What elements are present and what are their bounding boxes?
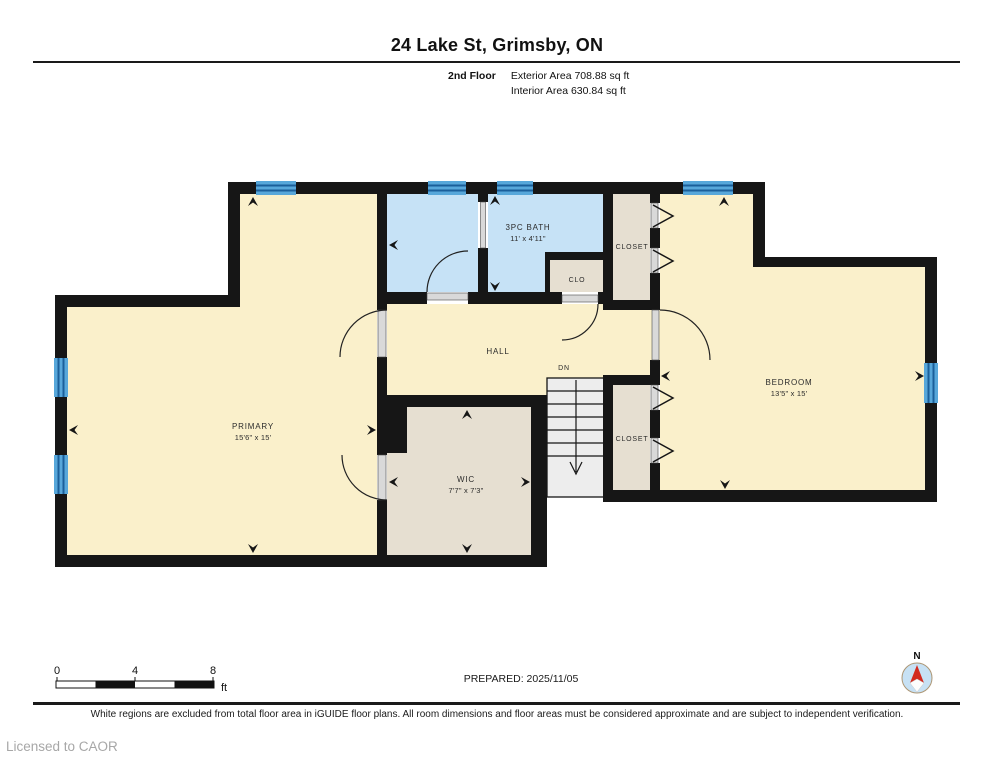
room-label-primary: PRIMARY	[232, 422, 274, 431]
wall-segment	[377, 357, 387, 455]
wall-segment	[531, 407, 547, 567]
room-dims-bath: 11' x 4'11"	[510, 234, 546, 243]
wall-segment	[55, 295, 67, 567]
window	[54, 455, 68, 494]
room-label-clo: CLO	[569, 277, 586, 284]
footer-divider	[33, 702, 960, 705]
room-clo	[550, 260, 603, 292]
floor-plan-page: 24 Lake St, Grimsby, ON 2nd Floor Exteri…	[0, 0, 994, 768]
room-label-closet-upper: CLOSET	[616, 244, 649, 251]
wall-segment	[545, 252, 550, 292]
room-label-bath: 3PC BATH	[506, 223, 551, 232]
wall-segment	[387, 292, 427, 304]
scale-bar-segment	[175, 681, 215, 688]
disclaimer-text: White regions are excluded from total fl…	[0, 709, 994, 720]
compass-rose-icon: N	[902, 651, 932, 693]
wall-segment	[377, 194, 387, 310]
door-leaf	[378, 455, 386, 500]
room-dims-primary: 15'6" x 15'	[235, 433, 272, 442]
scale-unit-label: ft	[221, 682, 227, 694]
prepared-date: PREPARED: 2025/11/05	[464, 673, 579, 685]
window	[54, 358, 68, 397]
door-leaf	[378, 310, 386, 357]
door-leaf	[562, 295, 598, 302]
wall-segment	[650, 410, 660, 438]
compass-north-label: N	[913, 651, 920, 662]
room-primary-ext	[240, 194, 377, 307]
staircase	[547, 378, 605, 497]
door-leaf	[652, 310, 659, 360]
room-dims-bedroom: 13'5" x 15'	[771, 389, 808, 398]
wall-segment	[468, 292, 562, 304]
window	[924, 363, 938, 403]
wall-segment	[603, 194, 613, 300]
room-dims-wic: 7'7" x 7'3"	[449, 486, 484, 495]
room-hall	[387, 304, 660, 378]
wall-segment	[603, 490, 937, 502]
scale-bar-segment	[96, 681, 136, 688]
wall-segment	[753, 182, 765, 267]
window	[497, 181, 533, 195]
wall-segment	[55, 555, 547, 567]
wall-segment	[377, 500, 387, 567]
window	[683, 181, 733, 195]
wall-segment	[650, 228, 660, 248]
wall-segment	[478, 194, 488, 202]
stairs-dn-label: DN	[558, 365, 570, 372]
wall-segment	[228, 182, 240, 307]
wall-segment	[650, 273, 660, 310]
wall-segment	[650, 194, 660, 203]
wall-segment	[387, 395, 407, 453]
room-label-hall: HALL	[486, 347, 509, 356]
room-label-bedroom: BEDROOM	[766, 378, 813, 387]
door-leaf	[427, 293, 468, 300]
scale-bar: 0 4 8 ft	[54, 665, 227, 694]
scale-tick-8: 8	[210, 665, 216, 677]
wall-segment	[650, 463, 660, 490]
room-hall-lower	[387, 378, 547, 397]
scale-tick-4: 4	[132, 665, 138, 677]
wall-segment	[603, 375, 613, 502]
room-label-wic: WIC	[457, 475, 475, 484]
floor-plan-drawing: PRIMARY 15'6" x 15' HALL DN 3PC BATH 11'…	[0, 0, 994, 768]
scale-tick-0: 0	[54, 665, 60, 677]
room-primary	[67, 307, 377, 555]
pocket-door	[481, 202, 486, 248]
window	[428, 181, 466, 195]
wall-segment	[753, 257, 937, 267]
wall-segment	[387, 395, 547, 407]
room-bath-vestibule	[387, 194, 478, 292]
room-label-closet-lower: CLOSET	[616, 436, 649, 443]
wall-segment	[55, 295, 240, 307]
window	[256, 181, 296, 195]
wall-segment	[478, 248, 488, 292]
room-bedroom-upper	[660, 194, 753, 267]
license-text: Licensed to CAOR	[6, 739, 118, 754]
wall-segment	[545, 252, 605, 260]
